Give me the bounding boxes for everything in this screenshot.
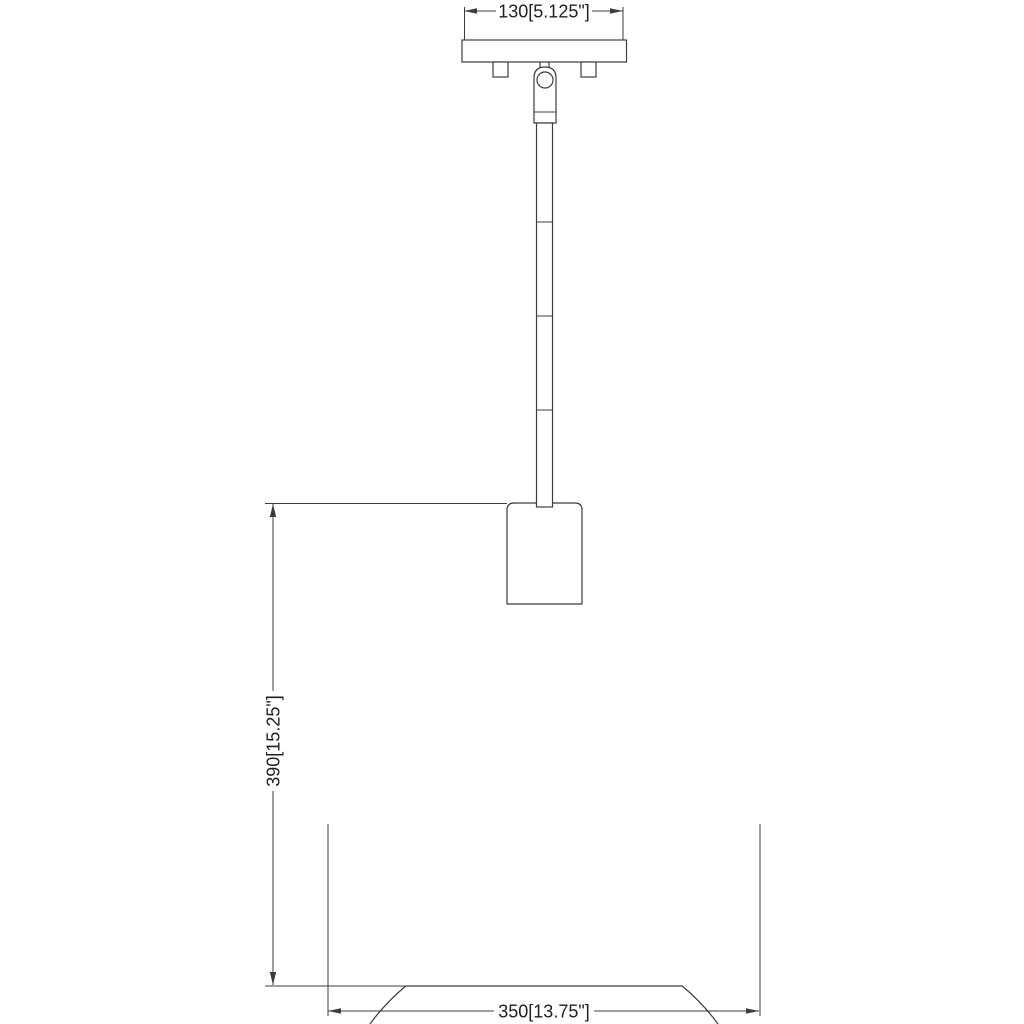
canopy-plate bbox=[462, 40, 627, 62]
dim-shade-diameter-label: 350[13.75"] bbox=[498, 1002, 589, 1022]
arrow-right-icon bbox=[610, 8, 623, 14]
dim-canopy-width-label: 130[5.125"] bbox=[498, 2, 589, 22]
dim-body-height-label: 390[15.25"] bbox=[264, 695, 284, 786]
arrow-left-icon bbox=[464, 8, 477, 14]
arrow-down-icon bbox=[270, 972, 276, 985]
dim-canopy-width: 130[5.125"] bbox=[464, 2, 623, 41]
swivel-body bbox=[534, 67, 556, 123]
dim-body-height: 390[15.25"] bbox=[264, 504, 508, 987]
down-rod-body bbox=[537, 123, 553, 507]
socket-cup-outline bbox=[507, 503, 582, 604]
mounting-screw-right-icon bbox=[581, 62, 596, 77]
down-rod bbox=[537, 123, 553, 507]
swivel-joint bbox=[534, 67, 556, 123]
dimension-drawing-page: 130[5.125"] 390[15.25"] 350[13.75"] bbox=[0, 0, 1024, 1024]
arrow-right-icon bbox=[746, 1008, 759, 1014]
pendant-light-dimension-drawing: 130[5.125"] 390[15.25"] 350[13.75"] bbox=[0, 0, 1024, 1024]
socket-cup bbox=[507, 503, 582, 604]
arrow-up-icon bbox=[270, 504, 276, 517]
mounting-screw-left-icon bbox=[493, 62, 508, 77]
arrow-left-icon bbox=[328, 1008, 341, 1014]
